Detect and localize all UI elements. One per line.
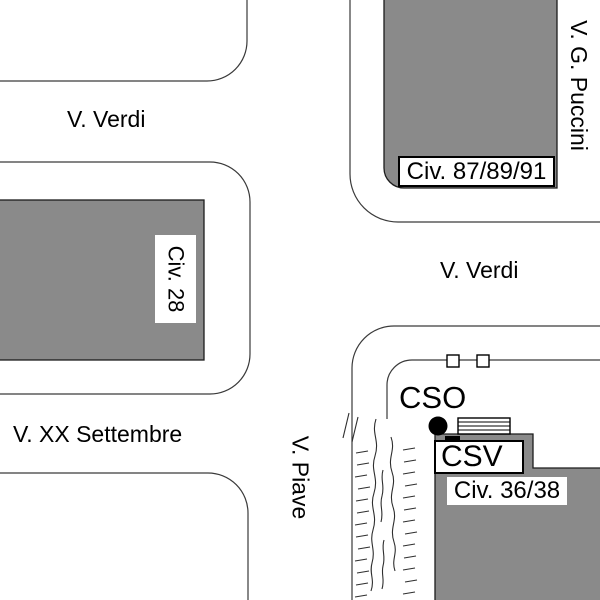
- cso-marker-dot: [429, 417, 448, 436]
- block-outline-top-left: [0, 0, 247, 81]
- street-label-xx-settembre: V. XX Settembre: [13, 422, 182, 448]
- street-label-verdi-right: V. Verdi: [440, 258, 518, 284]
- csv-label: CSV: [434, 440, 524, 474]
- street-label-puccini: V. G. Puccini: [562, 10, 594, 160]
- street-map: V. Verdi V. XX Settembre V. Verdi V. Pia…: [0, 0, 600, 600]
- cso-label: CSO: [399, 381, 466, 416]
- civic-label-civ-36-38: Civ. 36/38: [447, 477, 567, 505]
- block-outline-bottom-left: [0, 473, 248, 600]
- canopy-icon: [458, 418, 510, 434]
- street-label-verdi-top: V. Verdi: [67, 107, 145, 133]
- civic-label-civ-87-89-91: Civ. 87/89/91: [398, 156, 555, 187]
- entrance-square-icon: [447, 355, 459, 367]
- sketch-hatching: [343, 413, 417, 597]
- entrance-square-icon: [477, 355, 489, 367]
- civic-label-civ-28: Civ. 28: [155, 235, 196, 323]
- street-label-piave: V. Piave: [286, 430, 314, 524]
